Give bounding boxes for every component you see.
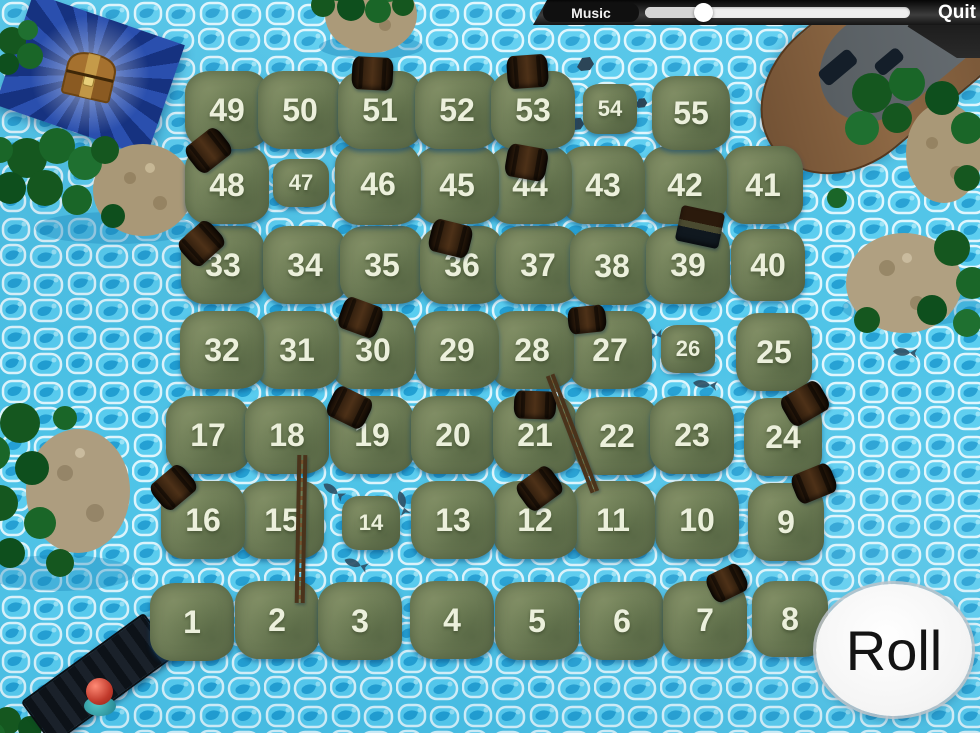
board-tile-20: 20	[411, 396, 495, 474]
board-tile-5: 5	[495, 582, 579, 660]
board-tile-34: 34	[263, 226, 347, 304]
tile-number: 46	[360, 166, 396, 203]
tile-number: 13	[435, 502, 471, 539]
barrel-icon	[567, 304, 608, 335]
music-slider-track[interactable]	[645, 7, 910, 18]
board-tile-50: 50	[258, 71, 342, 149]
tile-number: 16	[185, 502, 221, 539]
tile-number: 5	[528, 603, 546, 640]
barrel-icon	[506, 54, 549, 90]
music-volume-slider[interactable]	[645, 0, 910, 25]
board-tile-43: 43	[561, 146, 645, 224]
board-tile-32: 32	[180, 311, 264, 389]
tile-number: 2	[268, 602, 286, 639]
tile-number: 22	[599, 418, 635, 455]
tile-number: 37	[520, 247, 556, 284]
roll-button[interactable]: Roll	[816, 584, 972, 716]
tile-number: 4	[443, 602, 461, 639]
tile-number: 30	[355, 332, 391, 369]
tile-number: 10	[679, 502, 715, 539]
tile-number: 26	[676, 336, 700, 362]
tile-number: 34	[287, 247, 323, 284]
board-tile-37: 37	[496, 226, 580, 304]
tile-number: 40	[750, 247, 786, 284]
music-label-panel: Music	[543, 3, 639, 22]
music-slider-handle[interactable]	[694, 3, 713, 22]
barrel-icon	[351, 56, 394, 91]
tile-number: 28	[514, 332, 550, 369]
board-tile-2: 2	[235, 581, 319, 659]
tile-number: 42	[667, 167, 703, 204]
board-tile-25: 25	[736, 313, 812, 391]
board-tile-38: 38	[570, 227, 654, 305]
board-tile-10: 10	[655, 481, 739, 559]
tile-number: 1	[183, 604, 201, 641]
board-tile-28: 28	[490, 311, 574, 389]
tile-number: 52	[439, 92, 475, 129]
tile-number: 8	[781, 601, 799, 638]
tile-number: 6	[613, 603, 631, 640]
tile-number: 31	[279, 332, 315, 369]
board-tile-31: 31	[255, 311, 339, 389]
board-tile-26: 26	[661, 325, 715, 373]
player-piece-top	[86, 678, 113, 705]
tile-number: 25	[756, 334, 792, 371]
tile-number: 55	[673, 95, 709, 132]
tile-number: 39	[670, 247, 706, 284]
board-tile-52: 52	[415, 71, 499, 149]
tile-number: 41	[745, 167, 781, 204]
tile-number: 3	[351, 603, 369, 640]
board-tile-3: 3	[318, 582, 402, 660]
tile-number: 35	[364, 247, 400, 284]
barrel-icon	[514, 390, 557, 419]
game-screen: 1 2 3 4 5 6 7 8 9 10 11 12 13 14 15 16 1…	[0, 0, 980, 733]
tile-number: 7	[696, 602, 714, 639]
board-tile-40: 40	[731, 229, 805, 301]
board-tile-11: 11	[571, 481, 655, 559]
board-tile-14: 14	[342, 496, 400, 550]
tile-number: 29	[439, 332, 475, 369]
tile-number: 45	[439, 167, 475, 204]
tile-number: 17	[190, 417, 226, 454]
tile-number: 47	[289, 170, 313, 196]
board-tile-41: 41	[723, 146, 803, 224]
board-tile-54: 54	[583, 84, 637, 134]
tile-number: 20	[435, 417, 471, 454]
tile-number: 32	[204, 332, 240, 369]
board-tile-15: 15	[240, 481, 324, 559]
barrel-icon	[503, 143, 549, 183]
board-tile-23: 23	[650, 396, 734, 474]
board-tile-1: 1	[150, 583, 234, 661]
board-tile-6: 6	[580, 582, 664, 660]
tile-number: 23	[674, 417, 710, 454]
tile-number: 48	[209, 167, 245, 204]
board-tile-47: 47	[273, 159, 329, 207]
tile-number: 43	[585, 167, 621, 204]
board-tile-45: 45	[415, 146, 499, 224]
tile-number: 38	[594, 248, 630, 285]
tile-number: 11	[596, 502, 630, 539]
board-tile-13: 13	[411, 481, 495, 559]
board-tile-17: 17	[166, 396, 250, 474]
board-tile-46: 46	[335, 143, 421, 225]
tile-number: 51	[362, 92, 398, 129]
music-label: Music	[571, 5, 611, 21]
tile-number: 53	[515, 92, 551, 129]
board-tile-29: 29	[415, 311, 499, 389]
board-tile-4: 4	[410, 581, 494, 659]
tile-number: 21	[517, 417, 553, 454]
tile-number: 50	[282, 92, 318, 129]
board-tile-18: 18	[245, 396, 329, 474]
quit-button[interactable]: Quit	[938, 2, 980, 24]
tile-number: 15	[264, 502, 300, 539]
top-bar: Music Quit	[533, 0, 980, 25]
tile-number: 27	[592, 332, 628, 369]
tile-number: 18	[269, 417, 305, 454]
board-tile-35: 35	[340, 226, 424, 304]
tile-number: 14	[359, 510, 383, 536]
quit-panel: Quit	[916, 2, 980, 24]
tile-number: 54	[598, 96, 622, 122]
tile-number: 9	[777, 504, 795, 541]
tile-number: 49	[209, 92, 245, 129]
board-tile-55: 55	[652, 76, 730, 150]
